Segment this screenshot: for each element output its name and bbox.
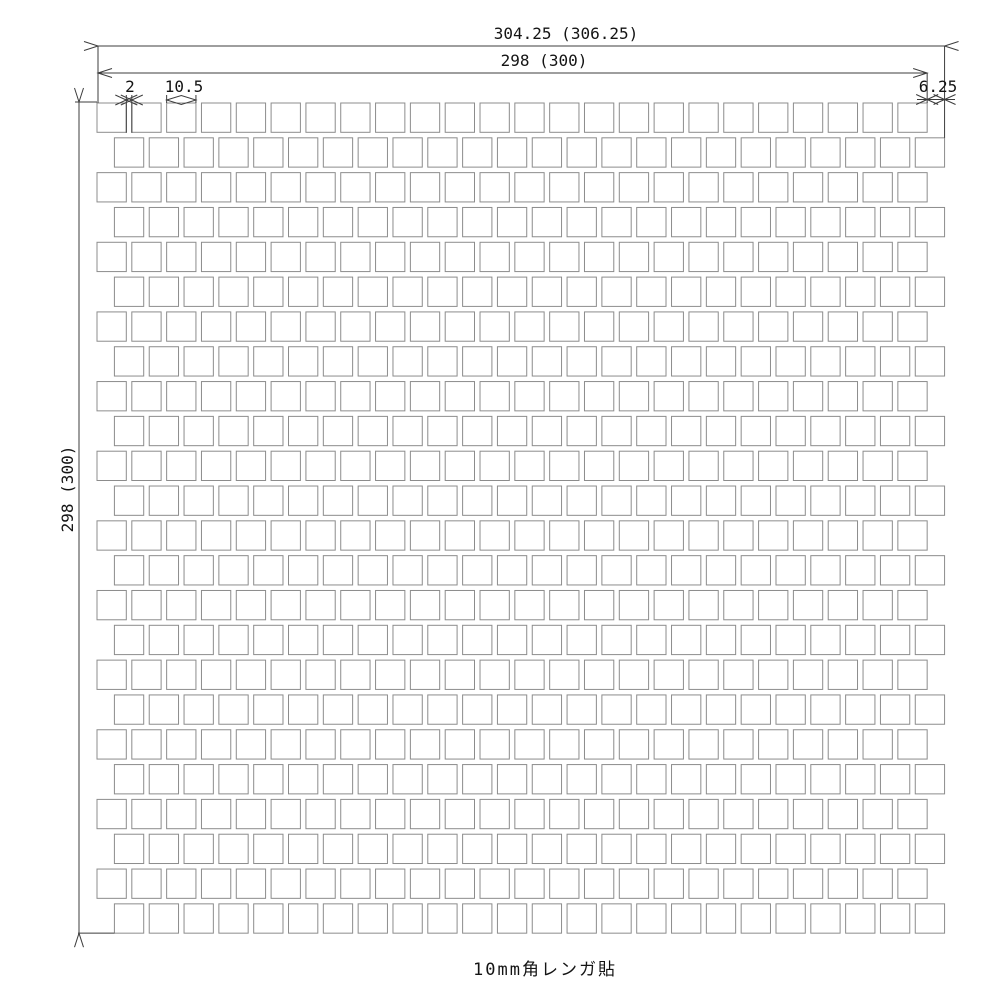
tile — [532, 765, 561, 794]
drawing-canvas: 304.25 (306.25) 298 (300) 2 10.5 6.25 29… — [0, 0, 1000, 1000]
tile — [254, 904, 283, 933]
tile — [672, 695, 701, 724]
tile — [724, 521, 753, 550]
tile — [776, 277, 805, 306]
tile — [167, 660, 196, 689]
tile — [741, 486, 770, 515]
tile — [619, 521, 648, 550]
tile — [393, 277, 422, 306]
tile — [776, 834, 805, 863]
tile — [776, 207, 805, 236]
tile — [114, 486, 143, 515]
tile — [463, 695, 492, 724]
tile — [289, 556, 318, 585]
tile — [811, 347, 840, 376]
tile — [97, 660, 126, 689]
tile — [463, 347, 492, 376]
tile — [637, 904, 666, 933]
tile — [271, 730, 300, 759]
tile — [393, 347, 422, 376]
tile — [358, 416, 387, 445]
tile — [358, 904, 387, 933]
tile — [689, 521, 718, 550]
tile — [741, 765, 770, 794]
tile — [654, 103, 683, 132]
tile — [480, 173, 509, 202]
tile — [358, 625, 387, 654]
tile — [828, 730, 857, 759]
tile — [863, 799, 892, 828]
tile — [759, 799, 788, 828]
tile — [567, 138, 596, 167]
tile — [637, 695, 666, 724]
tile — [289, 138, 318, 167]
tile — [793, 312, 822, 341]
tile — [445, 869, 474, 898]
tile — [637, 486, 666, 515]
tile — [132, 730, 161, 759]
tile — [97, 730, 126, 759]
tile — [811, 625, 840, 654]
tile — [532, 416, 561, 445]
tile — [863, 312, 892, 341]
tile — [167, 521, 196, 550]
tile — [637, 765, 666, 794]
tile — [550, 799, 579, 828]
tile — [724, 660, 753, 689]
tile — [132, 590, 161, 619]
tile — [532, 486, 561, 515]
tile — [828, 590, 857, 619]
tile — [149, 277, 178, 306]
tile — [201, 382, 230, 411]
tile — [567, 695, 596, 724]
tile — [289, 904, 318, 933]
tile — [184, 416, 213, 445]
tile — [428, 695, 457, 724]
tile — [898, 799, 927, 828]
tile — [97, 242, 126, 271]
tile — [271, 103, 300, 132]
tile — [497, 765, 526, 794]
tile — [236, 660, 265, 689]
tile — [289, 416, 318, 445]
tile — [515, 173, 544, 202]
tile — [880, 695, 909, 724]
tile — [654, 590, 683, 619]
tile — [341, 521, 370, 550]
tile — [532, 625, 561, 654]
tile — [219, 834, 248, 863]
tile — [550, 382, 579, 411]
tile — [776, 625, 805, 654]
tile — [114, 556, 143, 585]
tile — [323, 347, 352, 376]
tile — [619, 660, 648, 689]
tile — [149, 834, 178, 863]
tile — [428, 904, 457, 933]
tile — [376, 312, 405, 341]
tile — [828, 799, 857, 828]
tile — [706, 834, 735, 863]
tile — [358, 138, 387, 167]
tile — [289, 695, 318, 724]
tile — [219, 486, 248, 515]
tile — [132, 521, 161, 550]
tile — [323, 486, 352, 515]
tile — [828, 521, 857, 550]
tile — [445, 730, 474, 759]
tile — [863, 869, 892, 898]
tile — [898, 242, 927, 271]
tile — [793, 521, 822, 550]
dim-total-width-label: 304.25 (306.25) — [494, 25, 639, 43]
tile — [880, 904, 909, 933]
dim-row-offset-label: 6.25 — [919, 78, 958, 96]
tile — [619, 869, 648, 898]
tile — [863, 451, 892, 480]
tile — [689, 242, 718, 271]
tile — [637, 347, 666, 376]
tile — [846, 765, 875, 794]
tile — [619, 730, 648, 759]
tile — [532, 834, 561, 863]
tile — [236, 590, 265, 619]
tile — [741, 904, 770, 933]
tile — [271, 382, 300, 411]
tile — [898, 103, 927, 132]
tile — [724, 382, 753, 411]
tile — [410, 869, 439, 898]
tile — [689, 869, 718, 898]
tile — [445, 242, 474, 271]
tile — [97, 799, 126, 828]
tile — [463, 556, 492, 585]
tile — [602, 904, 631, 933]
tile — [428, 556, 457, 585]
tile — [428, 277, 457, 306]
tile — [393, 138, 422, 167]
tile — [132, 242, 161, 271]
tile — [637, 138, 666, 167]
tile — [672, 138, 701, 167]
tile — [706, 695, 735, 724]
tile — [793, 451, 822, 480]
tile — [793, 799, 822, 828]
tile — [706, 556, 735, 585]
tile — [236, 173, 265, 202]
tile — [306, 103, 335, 132]
tile — [550, 730, 579, 759]
tile — [828, 173, 857, 202]
tile — [515, 312, 544, 341]
tile — [254, 556, 283, 585]
tile — [323, 277, 352, 306]
tile — [672, 904, 701, 933]
tile — [602, 625, 631, 654]
tile — [289, 834, 318, 863]
tile — [480, 103, 509, 132]
tile — [306, 660, 335, 689]
tile — [149, 625, 178, 654]
tile — [149, 347, 178, 376]
tile — [114, 416, 143, 445]
tile — [689, 103, 718, 132]
tile — [497, 625, 526, 654]
tile — [271, 869, 300, 898]
tile — [915, 277, 944, 306]
tile — [184, 556, 213, 585]
tile — [219, 765, 248, 794]
tile — [463, 416, 492, 445]
tile — [532, 207, 561, 236]
tile — [846, 277, 875, 306]
tile — [706, 347, 735, 376]
tile — [619, 242, 648, 271]
tile — [619, 312, 648, 341]
tile — [323, 207, 352, 236]
tile — [463, 486, 492, 515]
tile — [584, 242, 613, 271]
tile — [584, 590, 613, 619]
tile — [898, 730, 927, 759]
tile — [497, 138, 526, 167]
tile — [376, 173, 405, 202]
tile — [149, 207, 178, 236]
tile — [846, 834, 875, 863]
tile — [759, 590, 788, 619]
tile — [567, 347, 596, 376]
tile — [341, 869, 370, 898]
tile — [828, 103, 857, 132]
tile — [393, 834, 422, 863]
tile — [672, 347, 701, 376]
tile — [219, 695, 248, 724]
tile — [480, 799, 509, 828]
tile — [289, 765, 318, 794]
tile — [480, 312, 509, 341]
tile — [497, 207, 526, 236]
tile — [898, 382, 927, 411]
tile — [584, 521, 613, 550]
tile — [793, 173, 822, 202]
tile — [410, 103, 439, 132]
tile — [410, 521, 439, 550]
tile — [759, 451, 788, 480]
tile — [376, 869, 405, 898]
tile — [915, 347, 944, 376]
tile — [584, 660, 613, 689]
tile — [515, 590, 544, 619]
tile — [184, 277, 213, 306]
tile — [236, 869, 265, 898]
tile — [706, 138, 735, 167]
tile — [550, 242, 579, 271]
tile — [497, 347, 526, 376]
tile — [114, 625, 143, 654]
tile — [567, 207, 596, 236]
tile — [167, 382, 196, 411]
tile — [149, 695, 178, 724]
tile — [759, 382, 788, 411]
tile — [323, 556, 352, 585]
tile — [463, 765, 492, 794]
tile — [306, 521, 335, 550]
tile — [759, 521, 788, 550]
tile — [254, 277, 283, 306]
tile — [654, 799, 683, 828]
tile — [236, 521, 265, 550]
tile — [741, 556, 770, 585]
tile — [323, 904, 352, 933]
tile — [149, 138, 178, 167]
tile — [741, 834, 770, 863]
tile — [236, 799, 265, 828]
tile — [724, 869, 753, 898]
tile — [724, 730, 753, 759]
tile — [532, 138, 561, 167]
tile — [236, 382, 265, 411]
tile — [445, 451, 474, 480]
tile — [706, 486, 735, 515]
tile — [602, 486, 631, 515]
tile — [706, 625, 735, 654]
tile — [584, 451, 613, 480]
tile — [480, 590, 509, 619]
tile — [97, 312, 126, 341]
tile — [567, 625, 596, 654]
tile — [654, 451, 683, 480]
tile — [619, 590, 648, 619]
tile — [393, 904, 422, 933]
tile — [759, 660, 788, 689]
tile — [863, 242, 892, 271]
tile — [201, 730, 230, 759]
tile — [341, 590, 370, 619]
tile — [898, 451, 927, 480]
tile — [376, 590, 405, 619]
tile — [672, 416, 701, 445]
tile — [724, 103, 753, 132]
tile — [915, 765, 944, 794]
tile — [271, 799, 300, 828]
tile — [376, 660, 405, 689]
tile — [410, 312, 439, 341]
tile — [167, 312, 196, 341]
tile — [880, 347, 909, 376]
tile — [428, 486, 457, 515]
tile — [846, 625, 875, 654]
tile — [410, 242, 439, 271]
tile — [254, 416, 283, 445]
tile — [846, 486, 875, 515]
tile — [358, 765, 387, 794]
tile — [706, 277, 735, 306]
tile — [201, 660, 230, 689]
tile — [811, 834, 840, 863]
tile — [846, 138, 875, 167]
tile — [97, 103, 126, 132]
tile — [584, 173, 613, 202]
tile — [532, 347, 561, 376]
tile — [341, 451, 370, 480]
tile — [480, 730, 509, 759]
tile — [445, 799, 474, 828]
tile — [376, 799, 405, 828]
tile — [149, 486, 178, 515]
tile — [846, 556, 875, 585]
tile — [672, 277, 701, 306]
tile — [376, 521, 405, 550]
tile — [724, 312, 753, 341]
tile — [323, 416, 352, 445]
tile — [880, 556, 909, 585]
tile — [167, 103, 196, 132]
tile — [201, 242, 230, 271]
tile — [863, 730, 892, 759]
tile — [323, 625, 352, 654]
tile — [706, 207, 735, 236]
tile — [811, 904, 840, 933]
tile — [219, 138, 248, 167]
tile — [271, 590, 300, 619]
tile — [428, 625, 457, 654]
tile — [741, 207, 770, 236]
tile — [219, 207, 248, 236]
tile — [289, 347, 318, 376]
tile — [410, 451, 439, 480]
tile — [254, 138, 283, 167]
tile — [915, 556, 944, 585]
tile — [828, 660, 857, 689]
tile — [898, 312, 927, 341]
tile — [689, 312, 718, 341]
tile — [654, 382, 683, 411]
tile — [567, 416, 596, 445]
tile — [672, 625, 701, 654]
dim-joint-width-label: 2 — [125, 78, 135, 96]
tile — [672, 765, 701, 794]
tile — [515, 660, 544, 689]
tile — [515, 451, 544, 480]
tile — [236, 312, 265, 341]
tile — [393, 695, 422, 724]
arrowhead-icon — [84, 42, 98, 51]
tile — [602, 347, 631, 376]
tile — [602, 138, 631, 167]
tile — [271, 312, 300, 341]
tile — [428, 834, 457, 863]
tile — [428, 138, 457, 167]
tile — [654, 173, 683, 202]
tile — [811, 695, 840, 724]
tile — [323, 695, 352, 724]
tile — [915, 486, 944, 515]
arrowhead-icon — [945, 42, 959, 51]
tile — [532, 695, 561, 724]
tile — [341, 660, 370, 689]
tile — [289, 277, 318, 306]
tile — [410, 590, 439, 619]
tile — [776, 486, 805, 515]
tile — [793, 660, 822, 689]
tile — [567, 834, 596, 863]
tile — [358, 556, 387, 585]
tile — [410, 660, 439, 689]
tile — [550, 451, 579, 480]
tile — [532, 556, 561, 585]
tile — [410, 799, 439, 828]
